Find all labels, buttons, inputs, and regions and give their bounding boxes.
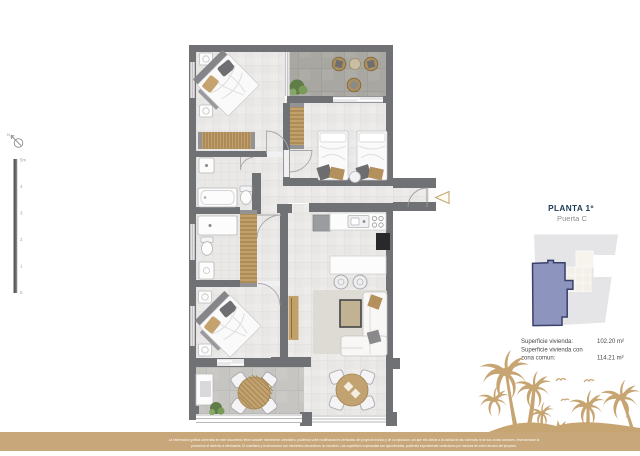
svg-text:114.21 m²: 114.21 m² — [597, 356, 624, 362]
svg-text:1: 1 — [20, 264, 23, 269]
svg-text:N: N — [7, 132, 10, 137]
svg-text:La informacion grafica conteni: La informacion grafica contenida en este… — [169, 438, 540, 442]
svg-text:zona comun:: zona comun: — [521, 356, 556, 362]
svg-text:4: 4 — [20, 184, 23, 189]
svg-text:Superficie vivienda:: Superficie vivienda: — [521, 339, 573, 345]
svg-text:5m: 5m — [20, 158, 26, 163]
svg-text:0: 0 — [20, 290, 23, 295]
svg-text:Superficie vivienda con: Superficie vivienda con — [521, 348, 583, 354]
svg-text:3: 3 — [20, 211, 23, 216]
svg-text:promotora el derecho a efectua: promotora el derecho a efectuarlas. El m… — [191, 444, 517, 448]
svg-text:102.20 m²: 102.20 m² — [597, 339, 624, 345]
svg-text:PLANTA 1º: PLANTA 1º — [548, 204, 594, 213]
svg-text:Puerta C: Puerta C — [557, 214, 587, 223]
svg-text:2: 2 — [20, 237, 23, 242]
